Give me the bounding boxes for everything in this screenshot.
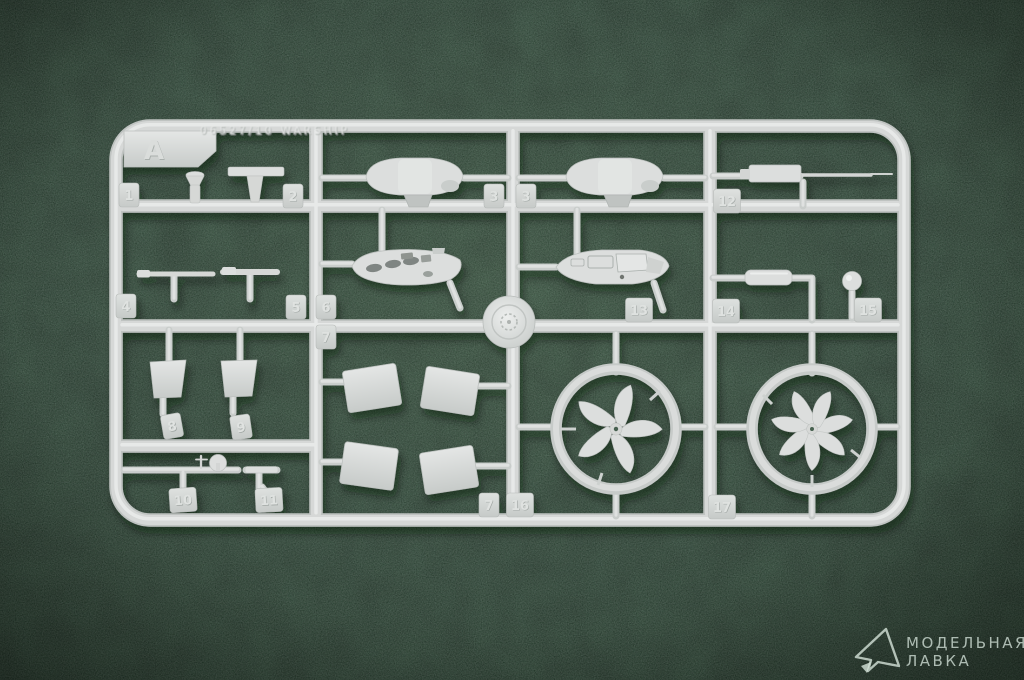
watermark-line2: ЛАВКА xyxy=(906,652,971,670)
watermark-line1: МОДЕЛЬНАЯ xyxy=(906,634,1024,652)
photo-model-kit-sprue: A A 06527/10 WARSHIP 06527/10 WARSHIP xyxy=(0,0,1024,680)
sprue-photo-canvas: A A 06527/10 WARSHIP 06527/10 WARSHIP xyxy=(0,0,1024,680)
vignette-overlay xyxy=(0,0,1024,680)
